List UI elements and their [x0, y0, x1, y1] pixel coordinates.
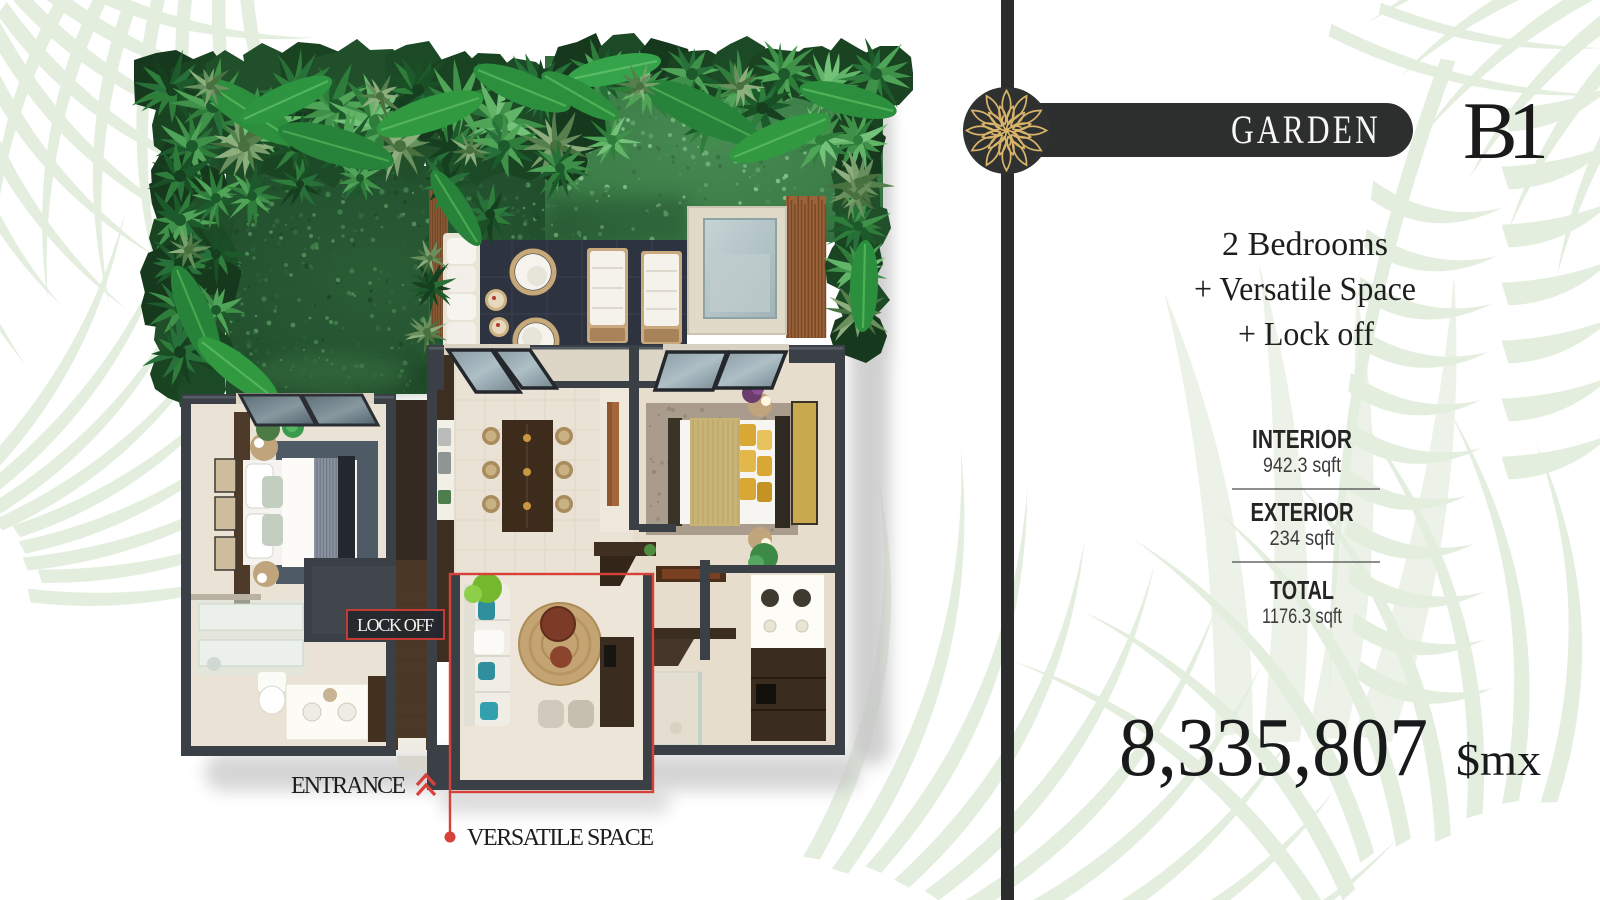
svg-text:234 sqft: 234 sqft — [1270, 527, 1335, 550]
svg-text:942.3 sqft: 942.3 sqft — [1263, 454, 1341, 477]
svg-text:1176.3 sqft: 1176.3 sqft — [1262, 605, 1342, 628]
svg-text:VERSATILE SPACE: VERSATILE SPACE — [467, 825, 655, 851]
svg-text:+ Versatile Space: + Versatile Space — [1194, 271, 1416, 308]
svg-text:B1: B1 — [1463, 85, 1549, 176]
svg-text:8,335,807: 8,335,807 — [1119, 701, 1428, 794]
svg-text:2 Bedrooms: 2 Bedrooms — [1222, 226, 1388, 263]
svg-text:TOTAL: TOTAL — [1270, 575, 1334, 605]
svg-text:$mx: $mx — [1456, 734, 1541, 785]
svg-text:+ Lock off: + Lock off — [1238, 316, 1375, 353]
svg-text:GARDEN: GARDEN — [1231, 107, 1381, 152]
svg-text:EXTERIOR: EXTERIOR — [1251, 497, 1354, 527]
svg-text:INTERIOR: INTERIOR — [1252, 424, 1352, 454]
svg-text:ENTRANCE: ENTRANCE — [291, 773, 407, 799]
svg-text:LOCK OFF: LOCK OFF — [357, 615, 434, 635]
